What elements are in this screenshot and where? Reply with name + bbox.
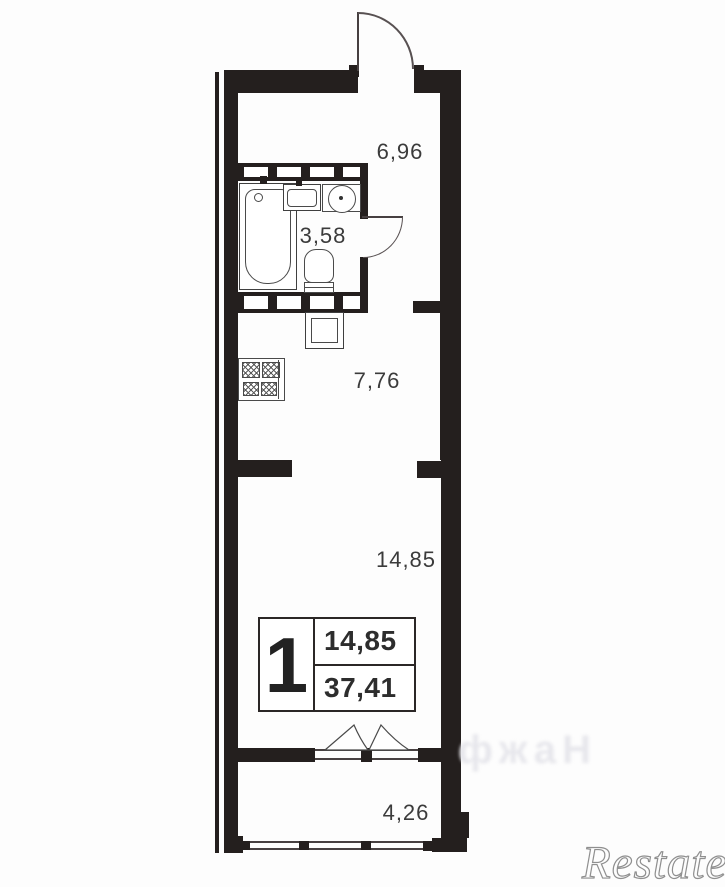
wall-top-left: [224, 70, 358, 93]
stove-burner: [243, 382, 259, 396]
stove-burner: [261, 382, 277, 396]
bathroom-door-arc: [363, 217, 403, 258]
toilet-cistern-line: [305, 287, 333, 288]
balcony-foot-right: [432, 838, 467, 852]
balcony-wall-right: [418, 748, 442, 762]
wall-stub-living-right: [417, 461, 461, 478]
total-area-value: 37,41: [315, 666, 414, 711]
toilet-cistern: [304, 282, 334, 293]
entrance-door-arc: [358, 12, 414, 69]
toilet-icon: [304, 249, 334, 283]
balcony-glazing-bottom: [238, 848, 434, 850]
wall-notch-right: [455, 812, 469, 838]
sink-basin: [287, 189, 317, 207]
stove-burner: [242, 362, 260, 378]
glazing-mullion: [299, 841, 309, 850]
rooms-count: 1: [260, 619, 315, 710]
living-area-value: 14,85: [315, 619, 414, 666]
bathtub-drain: [254, 193, 263, 202]
washing-machine-dot: [339, 196, 343, 200]
room-label-living-room: 14,85: [376, 547, 436, 573]
bathroom-wall-right-lower: [360, 257, 368, 313]
apartment-summary-table: 1 14,85 37,41: [258, 617, 416, 712]
bathroom-wall-right-upper: [360, 163, 368, 219]
bathroom-wall-bottom: [238, 292, 368, 313]
glazing-mullion: [361, 841, 371, 850]
restate-watermark: Restate: [582, 836, 725, 887]
bathroom-wall-top: [238, 163, 368, 181]
duct-shaft-inner: [311, 318, 338, 343]
wall-right-upper: [440, 70, 461, 460]
balcony-wall-left: [234, 748, 315, 762]
entrance-jamb-right: [414, 65, 424, 77]
balcony-glazing-top: [238, 841, 434, 843]
balcony-foot-left: [225, 836, 243, 853]
stove-icon: [238, 358, 285, 401]
sink-tap-icon: [296, 180, 302, 186]
stove-panel: [278, 360, 283, 399]
room-label-kitchen: 7,76: [354, 368, 401, 394]
room-label-hallway: 6,96: [377, 139, 424, 165]
wall-right-lower: [441, 460, 461, 852]
facade-line-left: [215, 72, 219, 853]
faint-watermark: фжаН: [458, 728, 643, 774]
wall-stub-hall-kitchen: [413, 301, 441, 313]
bathtub-tap-icon: [260, 176, 267, 184]
vent-slots: [244, 296, 362, 309]
room-label-bathroom: 3,58: [300, 223, 347, 249]
room-label-balcony: 4,26: [383, 800, 430, 826]
wall-left: [224, 70, 238, 853]
floor-plan: 6,96 3,58 7,76 14,85 4,26 1 14,85 37,41 …: [0, 0, 725, 887]
wall-stub-living-left: [238, 460, 292, 477]
window-casement-icon: [315, 721, 418, 751]
